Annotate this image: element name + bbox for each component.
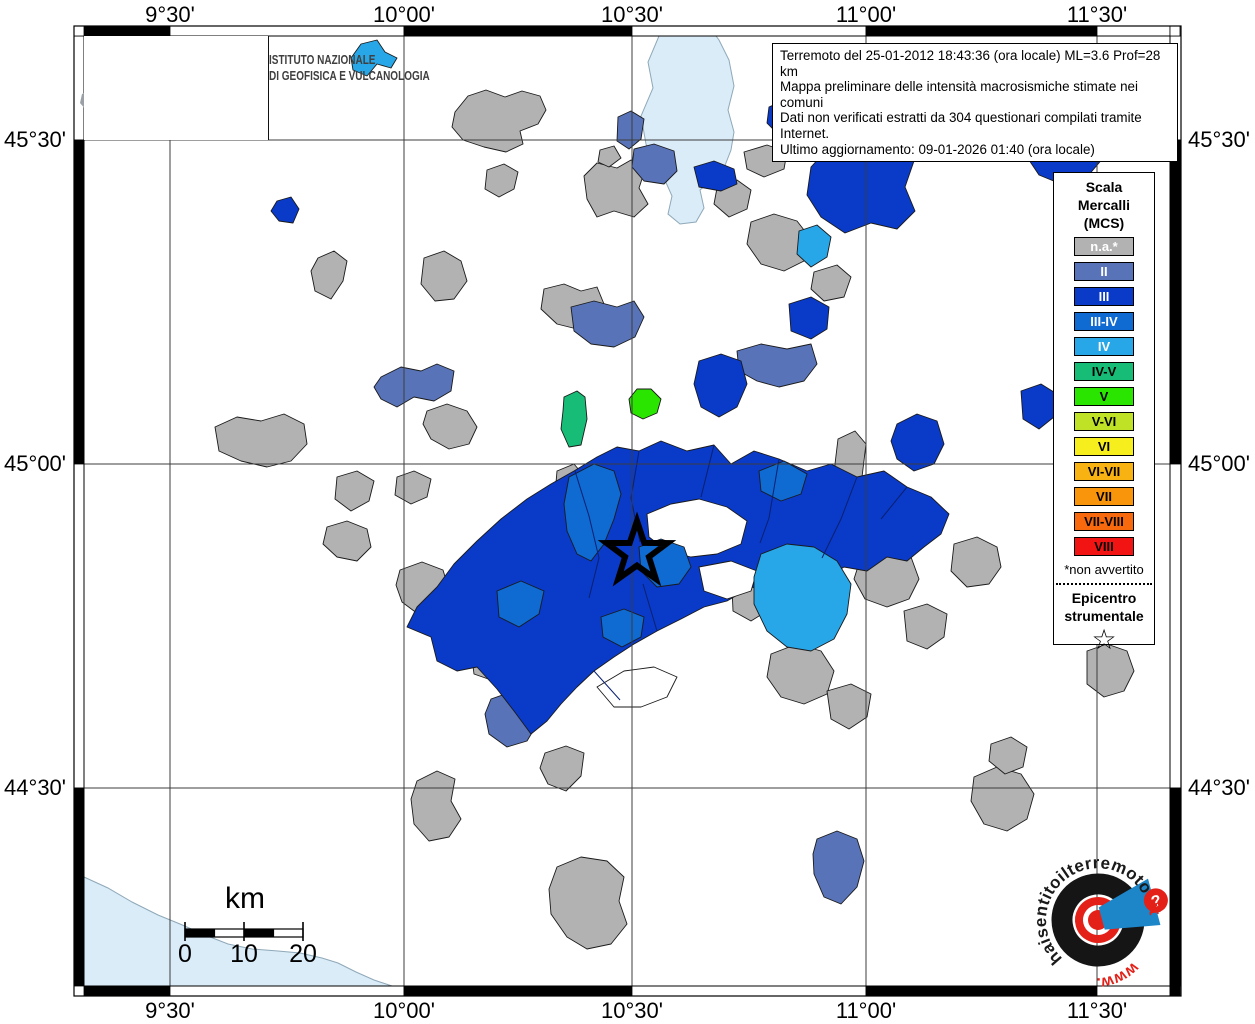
- region-III: [694, 354, 747, 417]
- frame-corner: [1170, 26, 1180, 36]
- legend-swatch-v: V: [1074, 387, 1134, 406]
- frame-corner: [74, 986, 84, 996]
- axis-label-left-2: 44°30': [0, 775, 66, 801]
- legend-swatch-na: n.a.*: [1074, 237, 1134, 256]
- legend-swatch-viii: VIII: [1074, 537, 1134, 556]
- legend-swatch-iv: IV: [1074, 337, 1134, 356]
- region-III: [891, 414, 944, 471]
- region-na: [485, 164, 518, 197]
- ingv-name-line1: ISTITUTO NAZIONALE: [269, 52, 509, 68]
- frame-segment: [632, 986, 866, 996]
- scalebar-unit-label: km: [200, 882, 290, 916]
- frame-segment: [1170, 140, 1181, 464]
- region-na: [540, 746, 584, 791]
- region-na: [215, 414, 307, 467]
- region-na: [335, 471, 374, 511]
- region-III: [789, 297, 829, 339]
- frame-segment: [170, 26, 404, 36]
- legend-swatch-vvi: V-VI: [1074, 412, 1134, 431]
- legend-divider: [1056, 583, 1152, 585]
- region-V: [629, 389, 661, 419]
- region-III: [694, 161, 737, 191]
- seismic-intensity-map-screenshot: ? haisentitoilterremoto .it www. ISTITUT…: [0, 0, 1255, 1024]
- region-na: [971, 767, 1034, 831]
- ingv-name-line2: DI GEOFISICA E VULCANOLOGIA: [269, 68, 509, 84]
- region-na: [323, 521, 371, 561]
- region-na: [311, 251, 347, 299]
- ingv-logo-box: [84, 36, 269, 140]
- axis-label-bottom-4: 11°30': [1067, 998, 1127, 1024]
- mercalli-scale-legend: Scala Mercalli (MCS) n.a.*IIIIIIII-IVIVI…: [1053, 172, 1155, 645]
- region-II: [737, 344, 817, 387]
- axis-label-left-0: 45°30': [0, 127, 66, 153]
- frame-segment: [74, 788, 84, 986]
- legend-swatch-iii: III: [1074, 287, 1134, 306]
- earthquake-info-box: Terremoto del 25-01-2012 18:43:36 (ora l…: [772, 43, 1178, 162]
- frame-segment: [404, 26, 632, 36]
- scalebar-tick-10: 10: [214, 940, 274, 969]
- axis-label-top-2: 10°30': [601, 2, 663, 28]
- frame-segment: [404, 986, 632, 996]
- frame-segment: [1170, 464, 1181, 788]
- scalebar-black-segment: [185, 929, 215, 937]
- region-II: [374, 364, 454, 407]
- frame-segment: [74, 36, 84, 140]
- region-na: [423, 404, 477, 449]
- axis-label-right-1: 45°00': [1188, 451, 1250, 477]
- legend-swatch-ivv: IV-V: [1074, 362, 1134, 381]
- axis-label-right-2: 44°30': [1188, 775, 1250, 801]
- haisentitoilterremoto-logo: ? haisentitoilterremoto .it www.: [1016, 836, 1187, 1005]
- legend-swatch-vii: VII: [1074, 487, 1134, 506]
- legend-swatch-vivii: VI-VII: [1074, 462, 1134, 481]
- region-II: [617, 111, 644, 149]
- legend-title-line2: Mercalli: [1054, 196, 1154, 214]
- axis-label-bottom-0: 9°30': [145, 998, 195, 1024]
- legend-swatch-list: n.a.*IIIIIIII-IVIVIV-VVV-VIVIVI-VIIVIIVI…: [1054, 237, 1154, 556]
- info-line-map-type: Mappa preliminare delle intensità macros…: [780, 79, 1170, 110]
- frame-segment: [866, 26, 1097, 36]
- region-II: [813, 831, 864, 904]
- region-na: [411, 771, 461, 841]
- legend-swatch-iiiiv: III-IV: [1074, 312, 1134, 331]
- axis-label-bottom-1: 10°00': [373, 998, 435, 1024]
- legend-swatch-viiviii: VII-VIII: [1074, 512, 1134, 531]
- info-line-updated: Ultimo aggiornamento: 09-01-2026 01:40 (…: [780, 142, 1170, 158]
- scalebar-black-segment: [244, 929, 274, 937]
- region-na: [951, 537, 1001, 587]
- region-III: [271, 197, 299, 223]
- region-IV5: [561, 391, 587, 447]
- axis-label-bottom-2: 10°30': [601, 998, 663, 1024]
- info-line-event: Terremoto del 25-01-2012 18:43:36 (ora l…: [780, 48, 1170, 79]
- frame-segment: [1170, 788, 1181, 986]
- region-na: [421, 251, 467, 301]
- axis-label-top-4: 11°30': [1067, 2, 1127, 28]
- region-II: [571, 301, 644, 347]
- ingv-institute-name: ISTITUTO NAZIONALE DI GEOFISICA E VULCAN…: [269, 52, 509, 84]
- region-na: [452, 90, 546, 152]
- region-III: [1021, 384, 1057, 429]
- axis-label-top-1: 10°00': [373, 2, 435, 28]
- frame-segment: [74, 140, 84, 464]
- frame-segment: [632, 26, 866, 36]
- frame-corner: [74, 26, 84, 36]
- scalebar-tick-0: 0: [155, 940, 215, 969]
- scalebar-tick-20: 20: [273, 940, 333, 969]
- region-na: [904, 604, 947, 649]
- region-na: [598, 146, 621, 167]
- region-na: [827, 684, 871, 729]
- region-na: [549, 857, 627, 949]
- frame-segment: [170, 986, 404, 996]
- region-na: [811, 265, 851, 301]
- axis-label-right-0: 45°30': [1188, 127, 1250, 153]
- frame-segment: [74, 464, 84, 788]
- frame-segment: [84, 986, 170, 996]
- legend-title-line1: Scala: [1054, 178, 1154, 196]
- axis-label-left-1: 45°00': [0, 451, 66, 477]
- epicenter-legend-star-icon: ☆: [1054, 625, 1154, 655]
- legend-swatch-vi: VI: [1074, 437, 1134, 456]
- legend-footnote: *non avvertito: [1054, 562, 1154, 577]
- legend-swatch-ii: II: [1074, 262, 1134, 281]
- frame-segment: [866, 986, 1097, 996]
- info-line-questionnaires: Dati non verificati estratti da 304 ques…: [780, 110, 1170, 141]
- region-na: [767, 644, 834, 704]
- legend-title-line3: (MCS): [1054, 214, 1154, 232]
- region-na: [395, 471, 431, 504]
- axis-label-bottom-3: 11°00': [836, 998, 896, 1024]
- epicenter-label-line1: Epicentro: [1054, 589, 1154, 607]
- axis-label-top-3: 11°00': [836, 2, 896, 28]
- frame-corner: [1170, 986, 1180, 996]
- axis-label-top-0: 9°30': [145, 2, 195, 28]
